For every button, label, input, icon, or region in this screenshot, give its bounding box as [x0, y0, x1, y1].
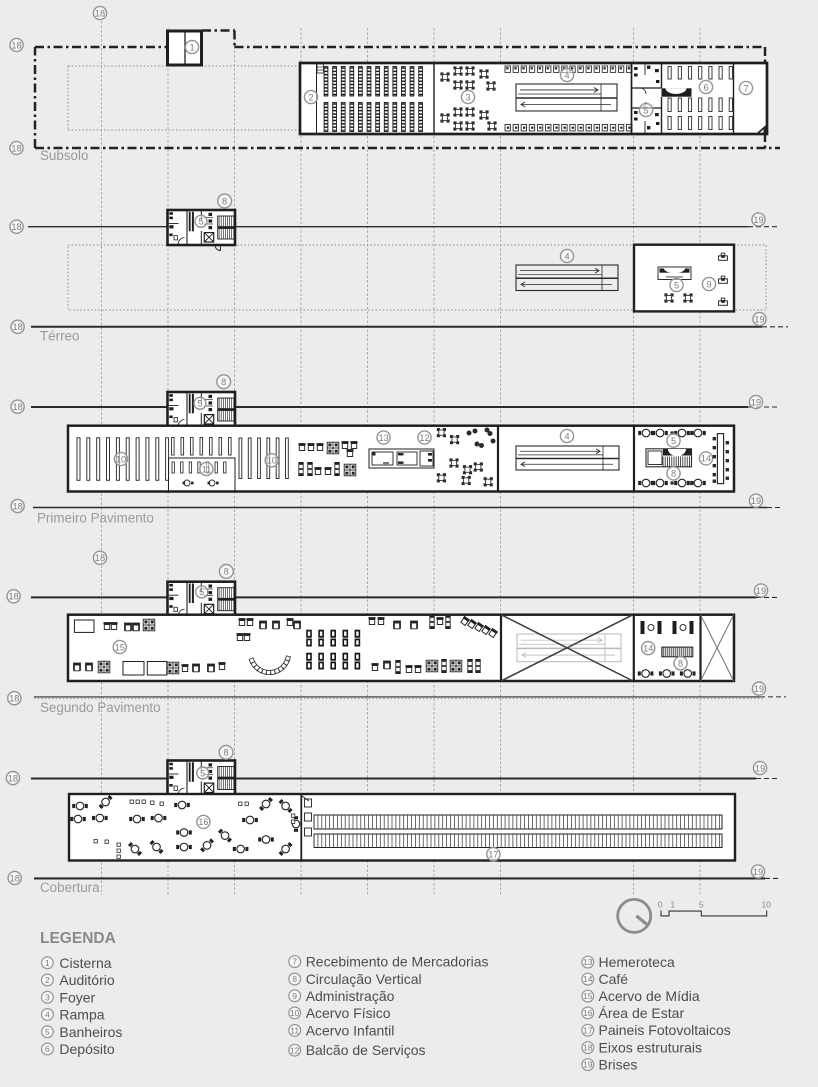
svg-text:9: 9	[292, 991, 297, 1001]
svg-text:16: 16	[198, 817, 208, 827]
svg-text:10: 10	[267, 456, 277, 466]
svg-text:10: 10	[290, 1008, 300, 1018]
svg-text:18: 18	[12, 501, 22, 511]
svg-text:Administração: Administração	[306, 988, 395, 1004]
svg-text:12: 12	[290, 1045, 300, 1055]
svg-text:Rampa: Rampa	[59, 1007, 104, 1023]
svg-text:Foyer: Foyer	[59, 989, 95, 1005]
svg-text:Área de Estar: Área de Estar	[599, 1005, 685, 1021]
svg-text:5: 5	[643, 105, 648, 115]
svg-text:5: 5	[200, 768, 205, 778]
svg-text:3: 3	[465, 92, 470, 102]
svg-text:5: 5	[199, 587, 204, 597]
svg-text:Recebimento de Mercadorias: Recebimento de Mercadorias	[306, 954, 489, 970]
svg-text:Primeiro Pavimento: Primeiro Pavimento	[37, 511, 154, 526]
svg-text:8: 8	[671, 469, 676, 479]
svg-text:1: 1	[670, 900, 675, 910]
svg-text:Brises: Brises	[599, 1057, 638, 1073]
svg-text:5: 5	[197, 399, 202, 409]
svg-text:Balcão de Serviços: Balcão de Serviços	[306, 1042, 426, 1058]
svg-text:10: 10	[761, 900, 771, 910]
svg-text:11: 11	[202, 464, 212, 474]
svg-text:5: 5	[45, 1027, 50, 1037]
svg-text:2: 2	[308, 92, 313, 102]
svg-text:17: 17	[583, 1025, 593, 1035]
svg-text:6: 6	[45, 1044, 50, 1054]
svg-text:18: 18	[11, 40, 21, 50]
svg-text:5: 5	[699, 900, 704, 910]
svg-text:Cisterna: Cisterna	[59, 955, 111, 971]
svg-text:8: 8	[222, 196, 227, 206]
svg-text:14: 14	[643, 643, 653, 653]
svg-text:11: 11	[290, 1025, 299, 1035]
svg-text:4: 4	[564, 251, 569, 261]
svg-text:3: 3	[45, 992, 50, 1002]
svg-text:19: 19	[754, 314, 764, 324]
svg-text:19: 19	[753, 215, 763, 225]
svg-text:4: 4	[45, 1010, 50, 1020]
svg-text:4: 4	[564, 431, 569, 441]
svg-text:Subsolo: Subsolo	[40, 148, 88, 163]
svg-text:19: 19	[754, 684, 764, 694]
svg-text:16: 16	[583, 1008, 593, 1018]
svg-text:19: 19	[751, 496, 761, 506]
svg-text:Acervo Físico: Acervo Físico	[306, 1005, 391, 1021]
svg-text:18: 18	[11, 222, 21, 232]
svg-text:19: 19	[751, 397, 761, 407]
svg-text:4: 4	[564, 70, 569, 80]
svg-text:Acervo de Mídia: Acervo de Mídia	[599, 988, 700, 1004]
svg-text:9: 9	[706, 279, 711, 289]
svg-text:5: 5	[674, 280, 679, 290]
svg-text:19: 19	[756, 586, 766, 596]
svg-text:19: 19	[583, 1060, 593, 1070]
svg-text:8: 8	[292, 974, 297, 984]
svg-text:Circulação Vertical: Circulação Vertical	[306, 971, 422, 987]
svg-text:8: 8	[224, 748, 229, 758]
svg-text:Banheiros: Banheiros	[59, 1024, 122, 1040]
svg-text:18: 18	[95, 8, 105, 18]
svg-text:Eixos estruturais: Eixos estruturais	[599, 1040, 702, 1056]
svg-text:Auditório: Auditório	[59, 972, 114, 988]
svg-text:18: 18	[8, 592, 18, 602]
svg-text:Acervo Infantil: Acervo Infantil	[306, 1022, 395, 1038]
svg-text:6: 6	[703, 82, 708, 92]
svg-text:14: 14	[583, 974, 593, 984]
svg-text:Depósito: Depósito	[59, 1041, 114, 1057]
svg-text:15: 15	[115, 642, 125, 652]
svg-text:Térreo: Térreo	[40, 329, 79, 344]
svg-text:18: 18	[10, 873, 20, 883]
svg-text:18: 18	[11, 143, 21, 153]
svg-text:LEGENDA: LEGENDA	[40, 930, 116, 947]
svg-text:5: 5	[198, 217, 203, 227]
svg-text:Hemeroteca: Hemeroteca	[599, 954, 675, 970]
svg-text:17: 17	[488, 850, 498, 860]
svg-text:18: 18	[12, 402, 22, 412]
svg-text:10: 10	[116, 454, 126, 464]
svg-text:18: 18	[12, 322, 22, 332]
svg-text:14: 14	[701, 454, 711, 464]
svg-text:18: 18	[8, 773, 18, 783]
svg-text:7: 7	[743, 83, 748, 93]
svg-text:8: 8	[221, 377, 226, 387]
svg-text:1: 1	[189, 42, 194, 52]
svg-text:13: 13	[378, 433, 388, 443]
svg-text:19: 19	[755, 763, 765, 773]
svg-text:0: 0	[658, 900, 663, 910]
svg-text:Segundo Pavimento: Segundo Pavimento	[40, 700, 161, 715]
svg-text:1: 1	[45, 958, 50, 968]
svg-text:8: 8	[678, 659, 683, 669]
svg-text:2: 2	[45, 975, 50, 985]
svg-text:18: 18	[95, 553, 105, 563]
svg-text:5: 5	[671, 436, 676, 446]
svg-text:19: 19	[753, 867, 763, 877]
svg-text:Cobertura: Cobertura	[40, 880, 100, 895]
svg-text:7: 7	[292, 957, 297, 967]
svg-text:12: 12	[419, 433, 429, 443]
svg-text:13: 13	[583, 957, 593, 967]
svg-text:8: 8	[224, 567, 229, 577]
svg-text:Café: Café	[599, 971, 629, 987]
svg-text:15: 15	[583, 991, 593, 1001]
svg-text:18: 18	[9, 694, 19, 704]
svg-text:18: 18	[583, 1043, 593, 1053]
svg-text:Paineis Fotovoltaicos: Paineis Fotovoltaicos	[599, 1022, 731, 1038]
